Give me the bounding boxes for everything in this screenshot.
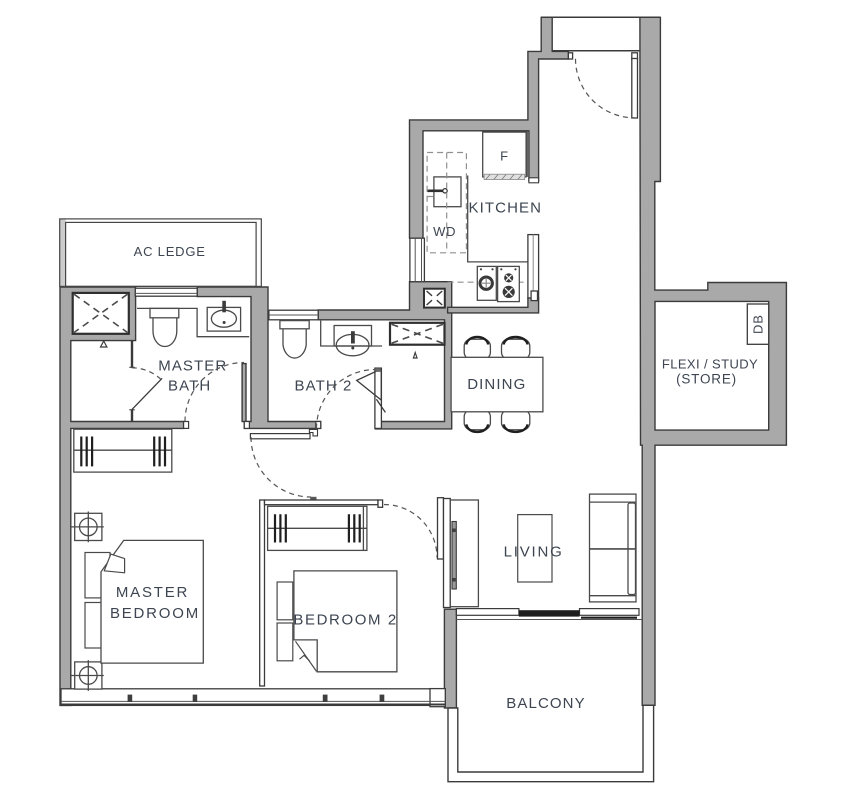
svg-text:BATH 2: BATH 2 [294, 378, 352, 395]
svg-text:MASTER: MASTER [116, 584, 189, 601]
svg-text:WD: WD [433, 224, 456, 239]
svg-text:DINING: DINING [467, 376, 526, 393]
svg-text:BEDROOM 2: BEDROOM 2 [293, 612, 397, 629]
svg-text:MASTER: MASTER [158, 358, 227, 375]
svg-text:KITCHEN: KITCHEN [469, 200, 543, 217]
svg-text:BATH: BATH [168, 378, 211, 395]
svg-text:F: F [500, 149, 509, 164]
svg-text:(STORE): (STORE) [676, 371, 737, 386]
svg-text:BALCONY: BALCONY [506, 695, 585, 712]
svg-text:LIVING: LIVING [504, 544, 564, 561]
svg-text:AC LEDGE: AC LEDGE [134, 244, 206, 259]
svg-text:DB: DB [751, 314, 766, 334]
svg-text:FLEXI / STUDY: FLEXI / STUDY [662, 357, 758, 372]
svg-text:BEDROOM: BEDROOM [110, 605, 200, 622]
